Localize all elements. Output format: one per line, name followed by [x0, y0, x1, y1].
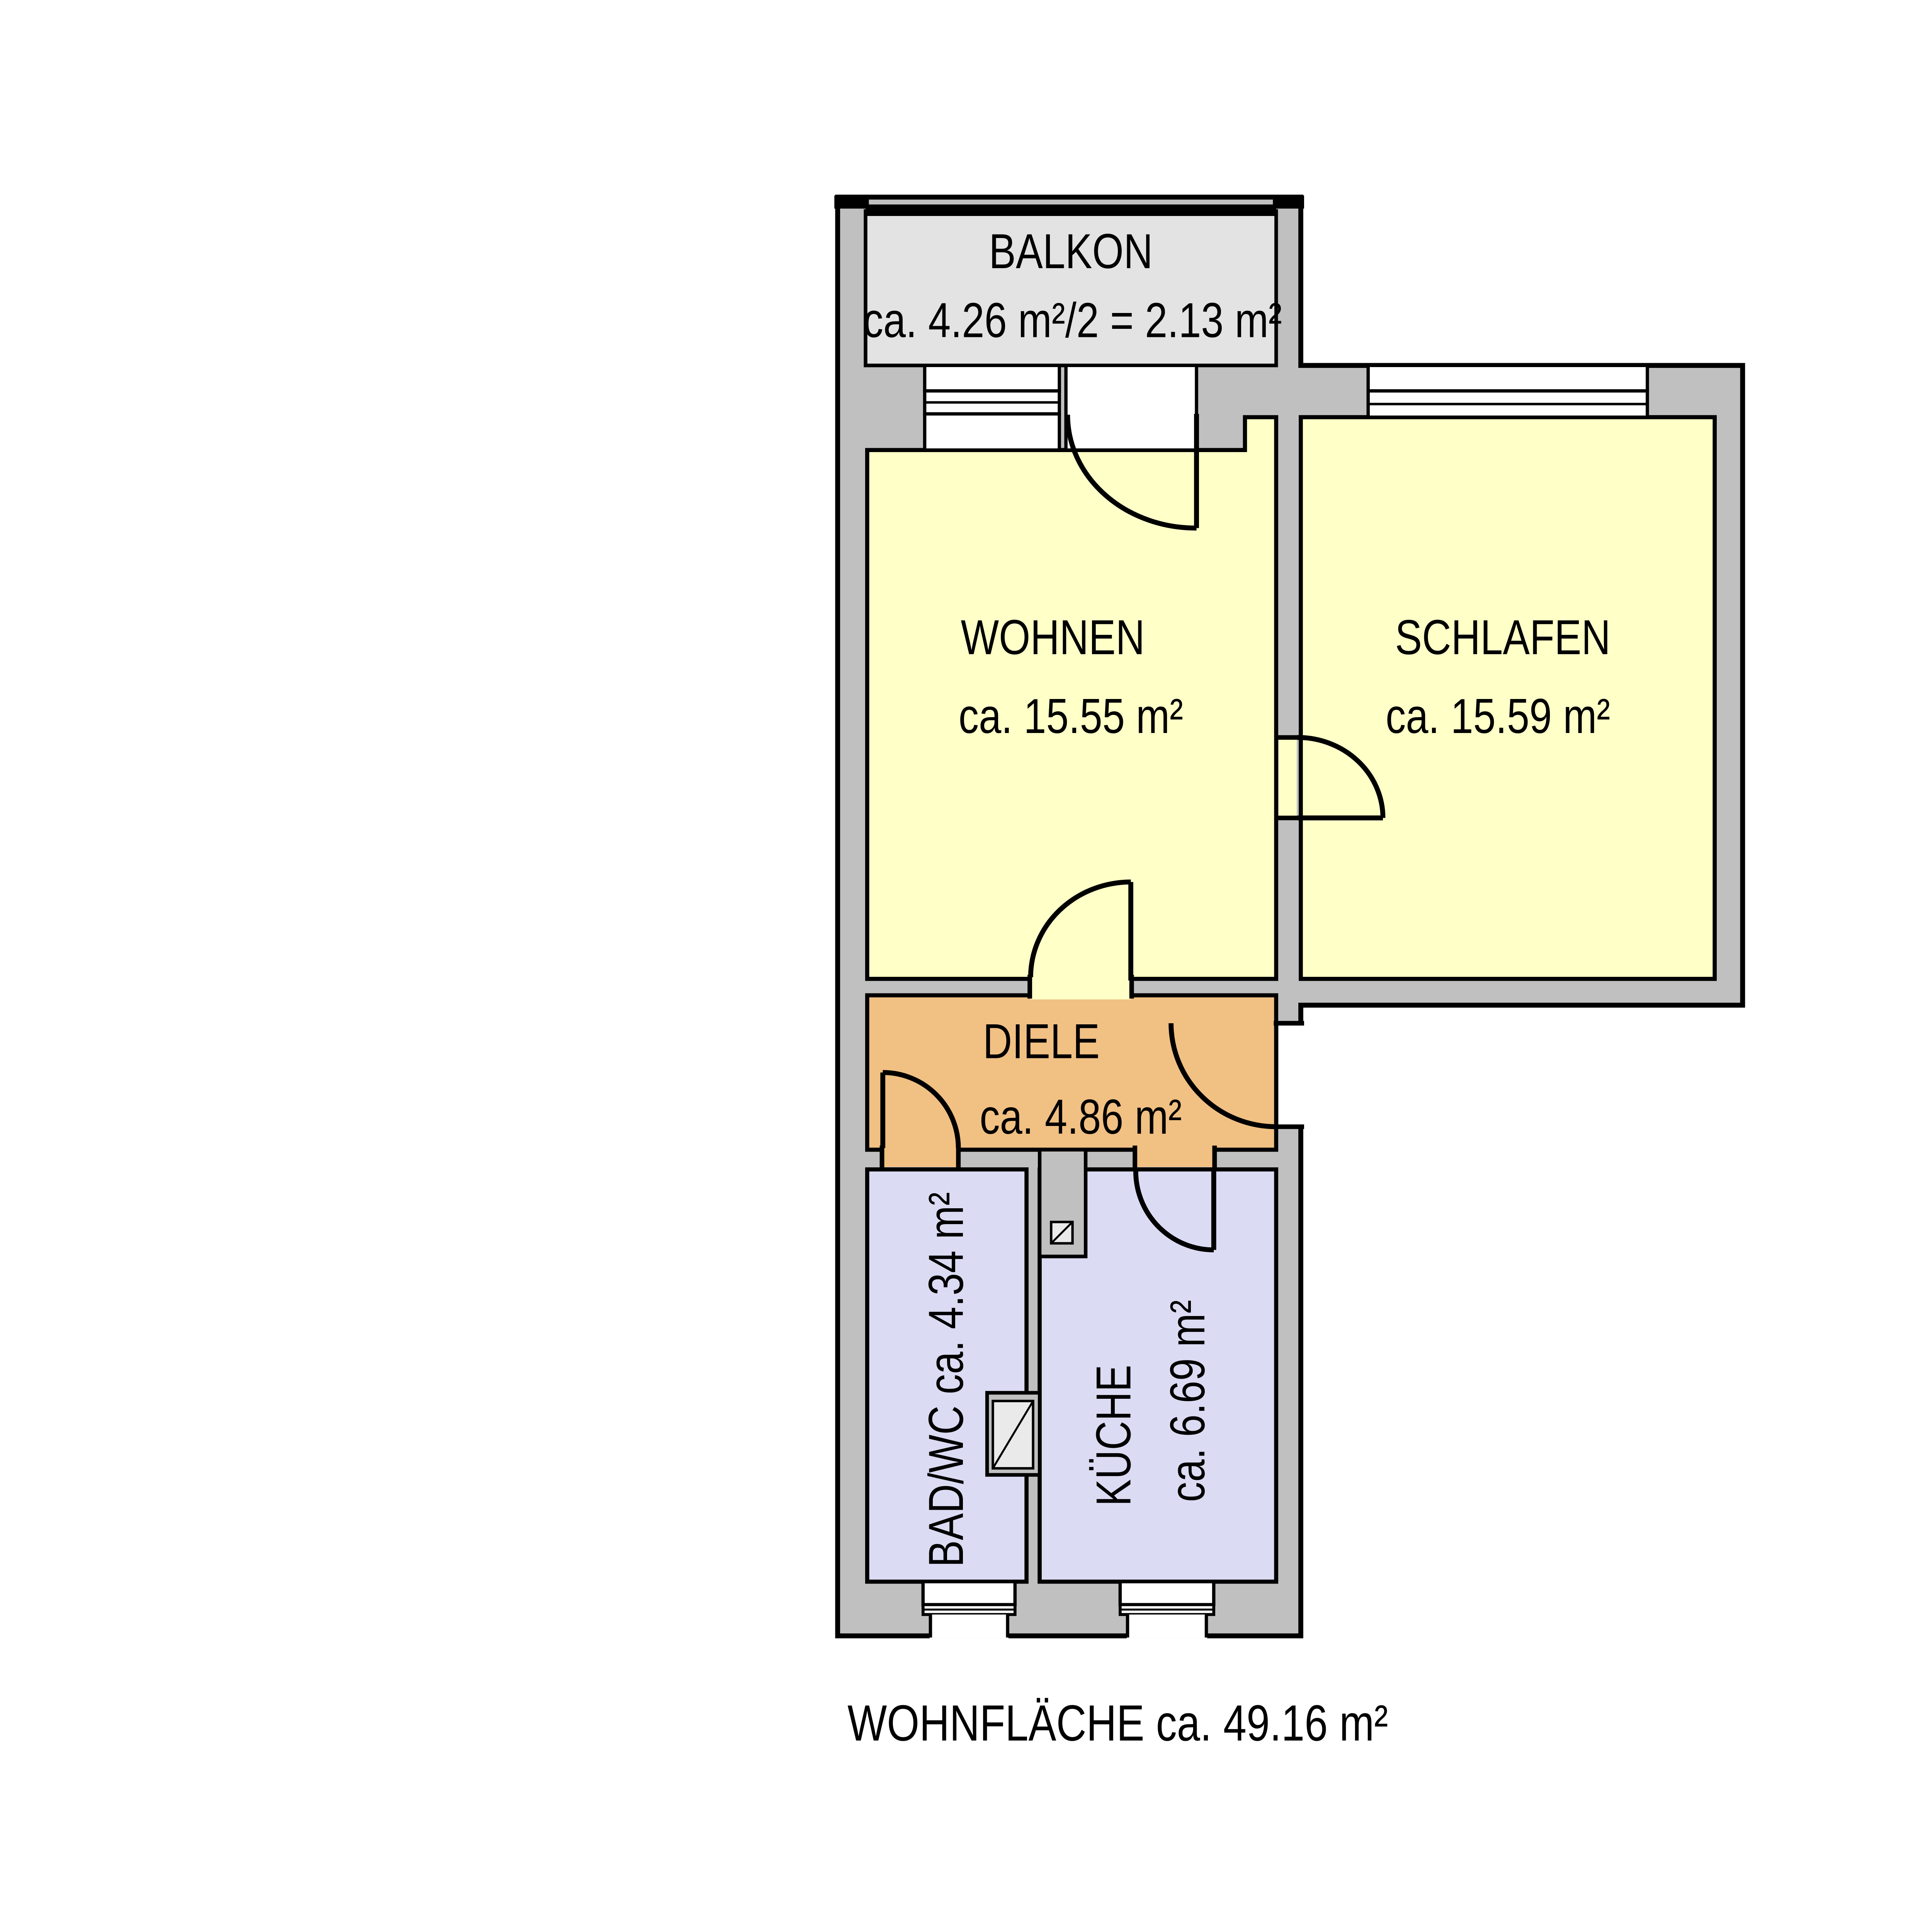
entry-door-opening — [1279, 1024, 1304, 1126]
floorplan-drawing — [0, 0, 1932, 1932]
balcony-corner-right — [1273, 196, 1304, 209]
hall-label: DIELE — [983, 1017, 1100, 1069]
balcony-corner-left — [834, 196, 869, 209]
balcony-railing — [866, 204, 1276, 216]
balcony-area-label: ca. 4.26 m²/2 = 2.13 m² — [863, 296, 1282, 348]
bad-window-outer — [930, 1614, 1009, 1638]
kueche-door-opening — [1136, 1146, 1214, 1167]
total-area-label: WOHNFLÄCHE ca. 49.16 m² — [847, 1698, 1388, 1751]
kueche-window-outer — [1127, 1614, 1207, 1638]
sleeping-label: SCHLAFEN — [1395, 613, 1611, 665]
bad-window-reveal — [923, 1582, 1015, 1605]
bath-label: BAD/WC ca. 4.34 m² — [922, 1192, 974, 1567]
ws-door-opening — [1279, 738, 1297, 817]
kitchen-area-label: ca. 6.69 m² — [1163, 1300, 1215, 1502]
bad-door-opening — [883, 1146, 959, 1167]
wd-door-opening — [1031, 974, 1131, 1000]
sleeping-area-label: ca. 15.59 m² — [1386, 692, 1610, 744]
balcony-label: BALKON — [989, 227, 1153, 279]
floorplan-page: BALKON ca. 4.26 m²/2 = 2.13 m² WOHNEN ca… — [0, 0, 1932, 1932]
wohnen-window-reveal — [925, 414, 1060, 450]
wohnen-window-sill — [925, 366, 1060, 391]
kitchen-label: KÜCHE — [1089, 1365, 1141, 1506]
schlafen-window-sill — [1368, 366, 1648, 391]
living-label: WOHNEN — [961, 613, 1145, 665]
kueche-window-reveal — [1120, 1582, 1214, 1605]
hall-area-label: ca. 4.86 m² — [980, 1093, 1182, 1145]
balcony-door-opening — [1066, 366, 1197, 450]
living-area-label: ca. 15.55 m² — [959, 692, 1183, 744]
